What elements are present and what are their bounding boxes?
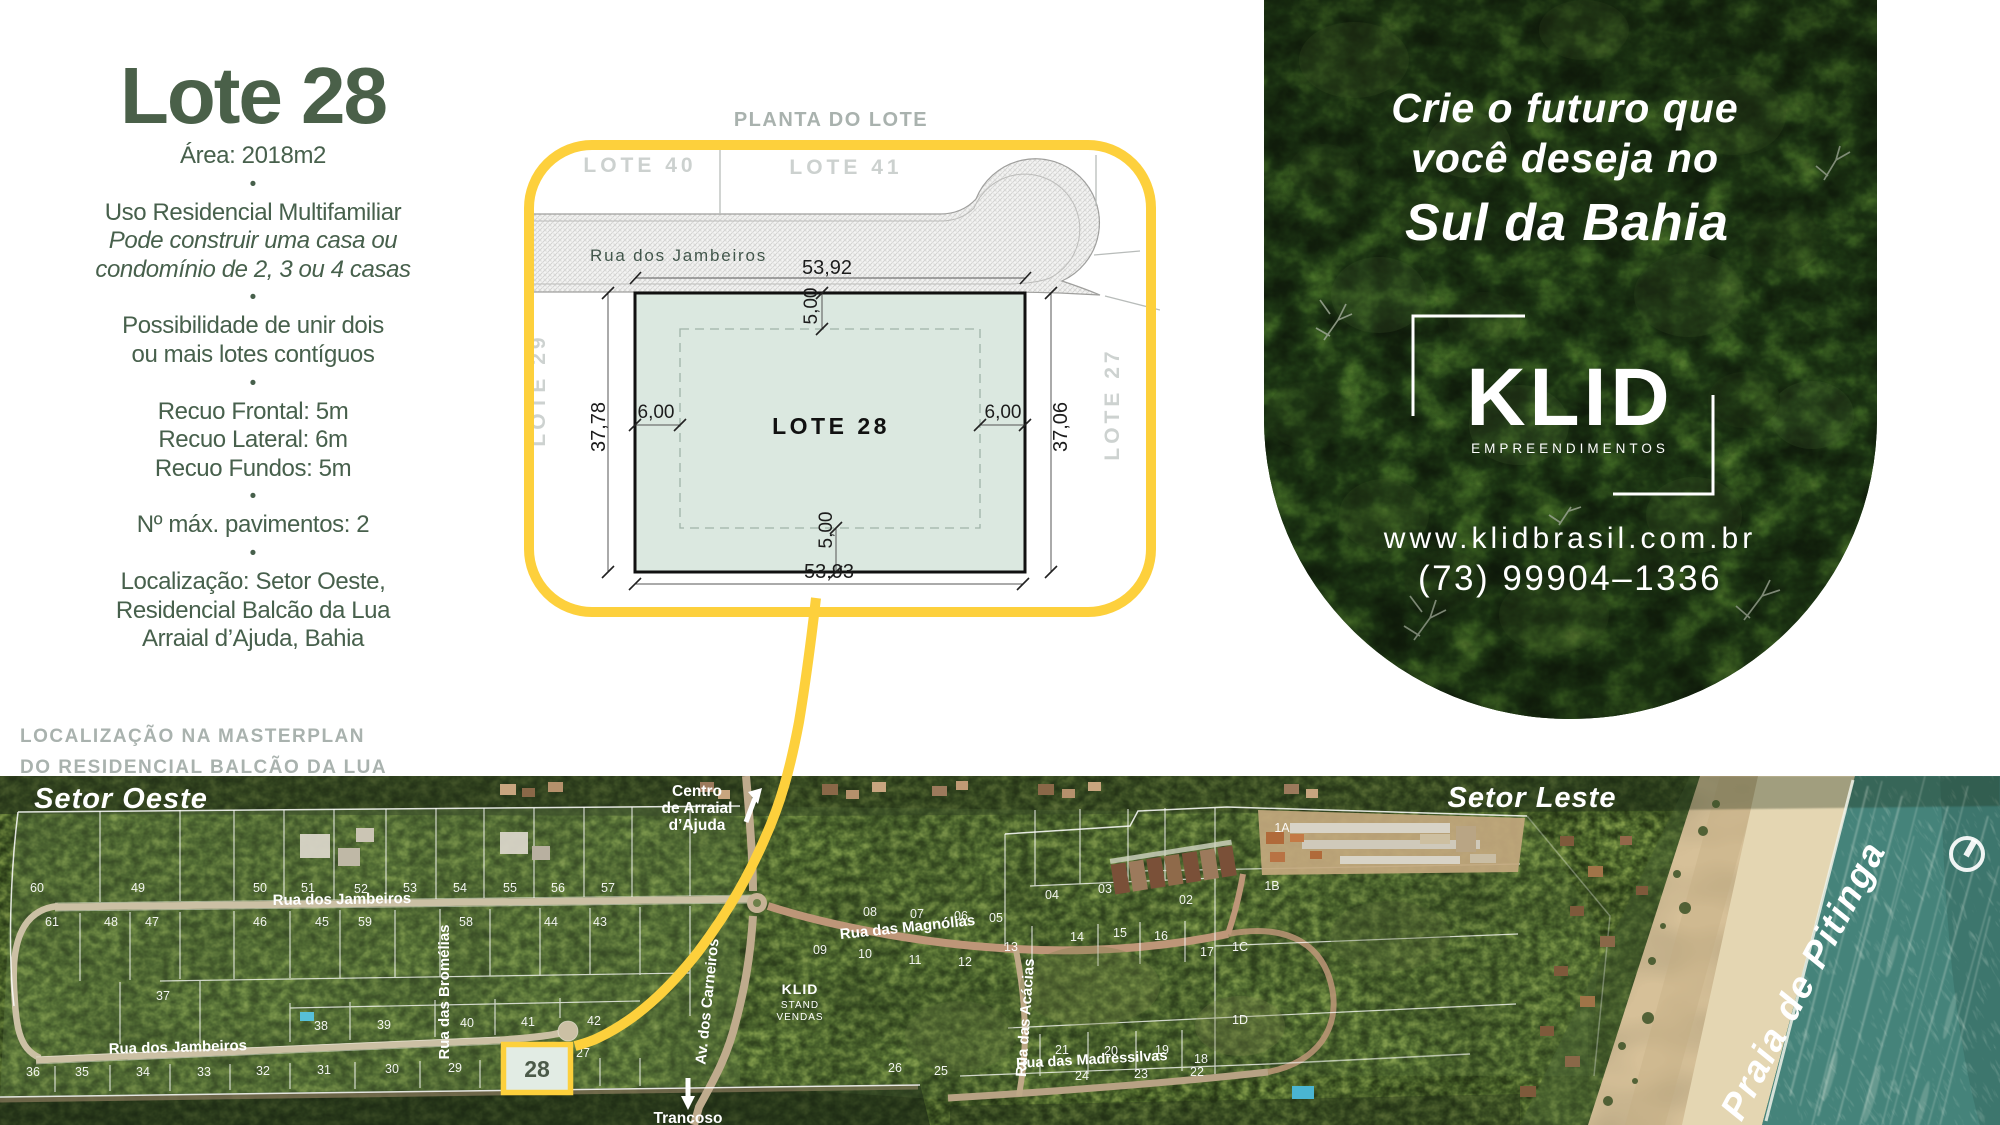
svg-text:Crie o futuro que: Crie o futuro que: [1391, 85, 1738, 131]
svg-text:44: 44: [544, 915, 558, 929]
svg-text:EMPREENDIMENTOS: EMPREENDIMENTOS: [1471, 441, 1669, 456]
svg-text:www.klidbrasil.com.br: www.klidbrasil.com.br: [1383, 522, 1756, 555]
svg-text:Trancoso: Trancoso: [654, 1110, 723, 1125]
svg-text:55: 55: [503, 881, 517, 895]
svg-text:24: 24: [1075, 1069, 1089, 1083]
svg-text:35: 35: [75, 1065, 89, 1079]
svg-text:d’Ajuda: d’Ajuda: [669, 817, 726, 834]
svg-text:30: 30: [385, 1062, 399, 1076]
svg-text:49: 49: [131, 881, 145, 895]
svg-text:58: 58: [459, 915, 473, 929]
svg-text:28: 28: [524, 1056, 550, 1082]
svg-text:16: 16: [1154, 929, 1168, 943]
svg-text:1B: 1B: [1264, 879, 1279, 893]
svg-text:VENDAS: VENDAS: [776, 1012, 823, 1023]
svg-text:23: 23: [1134, 1067, 1148, 1081]
svg-text:40: 40: [460, 1016, 474, 1030]
svg-text:31: 31: [317, 1063, 331, 1077]
svg-text:46: 46: [253, 915, 267, 929]
svg-text:Rua dos Jambeiros: Rua dos Jambeiros: [273, 890, 412, 909]
svg-text:45: 45: [315, 915, 329, 929]
svg-text:KLID: KLID: [782, 981, 819, 997]
svg-text:05: 05: [989, 911, 1003, 925]
svg-text:60: 60: [30, 881, 44, 895]
svg-text:36: 36: [26, 1065, 40, 1079]
svg-text:12: 12: [958, 955, 972, 969]
svg-text:02: 02: [1179, 893, 1193, 907]
svg-text:1D: 1D: [1232, 1013, 1248, 1027]
svg-text:57: 57: [601, 881, 615, 895]
svg-text:04: 04: [1045, 888, 1059, 902]
svg-text:09: 09: [813, 943, 827, 957]
svg-text:59: 59: [358, 915, 372, 929]
svg-text:Centro: Centro: [672, 783, 722, 800]
svg-text:STAND: STAND: [781, 1000, 819, 1011]
svg-text:Rua das Bromélias: Rua das Bromélias: [436, 924, 453, 1059]
svg-text:37: 37: [156, 989, 170, 1003]
svg-text:17: 17: [1200, 945, 1214, 959]
svg-text:54: 54: [453, 881, 467, 895]
svg-text:03: 03: [1098, 882, 1112, 896]
svg-text:27: 27: [576, 1046, 590, 1060]
svg-text:1A: 1A: [1274, 821, 1290, 835]
svg-text:15: 15: [1113, 926, 1127, 940]
svg-text:47: 47: [145, 915, 159, 929]
svg-text:Setor Leste: Setor Leste: [1448, 782, 1617, 814]
svg-text:39: 39: [377, 1018, 391, 1032]
svg-text:41: 41: [521, 1015, 535, 1029]
svg-text:42: 42: [587, 1014, 601, 1028]
svg-text:10: 10: [858, 947, 872, 961]
svg-text:11: 11: [909, 953, 922, 967]
svg-text:Rua dos Jambeiros: Rua dos Jambeiros: [108, 1037, 247, 1058]
svg-text:33: 33: [197, 1065, 211, 1079]
svg-text:22: 22: [1190, 1065, 1204, 1079]
svg-text:48: 48: [104, 915, 118, 929]
svg-text:08: 08: [863, 905, 877, 919]
svg-text:43: 43: [593, 915, 607, 929]
svg-text:Sul da Bahia: Sul da Bahia: [1405, 194, 1729, 252]
svg-text:(73) 99904–1336: (73) 99904–1336: [1418, 559, 1722, 598]
svg-text:14: 14: [1070, 930, 1084, 944]
svg-text:61: 61: [45, 915, 59, 929]
svg-text:1C: 1C: [1232, 940, 1248, 954]
svg-text:13: 13: [1004, 940, 1018, 954]
svg-text:29: 29: [448, 1061, 462, 1075]
svg-text:26: 26: [888, 1061, 902, 1075]
svg-text:18: 18: [1194, 1052, 1208, 1066]
svg-text:Setor Oeste: Setor Oeste: [34, 783, 208, 815]
svg-text:38: 38: [314, 1019, 328, 1033]
svg-text:KLID: KLID: [1466, 352, 1673, 443]
svg-text:25: 25: [934, 1064, 948, 1078]
svg-text:56: 56: [551, 881, 565, 895]
svg-text:PLANTA DO LOTE: PLANTA DO LOTE: [734, 109, 928, 131]
svg-text:34: 34: [136, 1065, 150, 1079]
svg-text:você deseja no: você deseja no: [1411, 135, 1719, 181]
svg-text:50: 50: [253, 881, 267, 895]
svg-text:32: 32: [256, 1064, 270, 1078]
svg-text:de Arraial: de Arraial: [662, 800, 733, 817]
